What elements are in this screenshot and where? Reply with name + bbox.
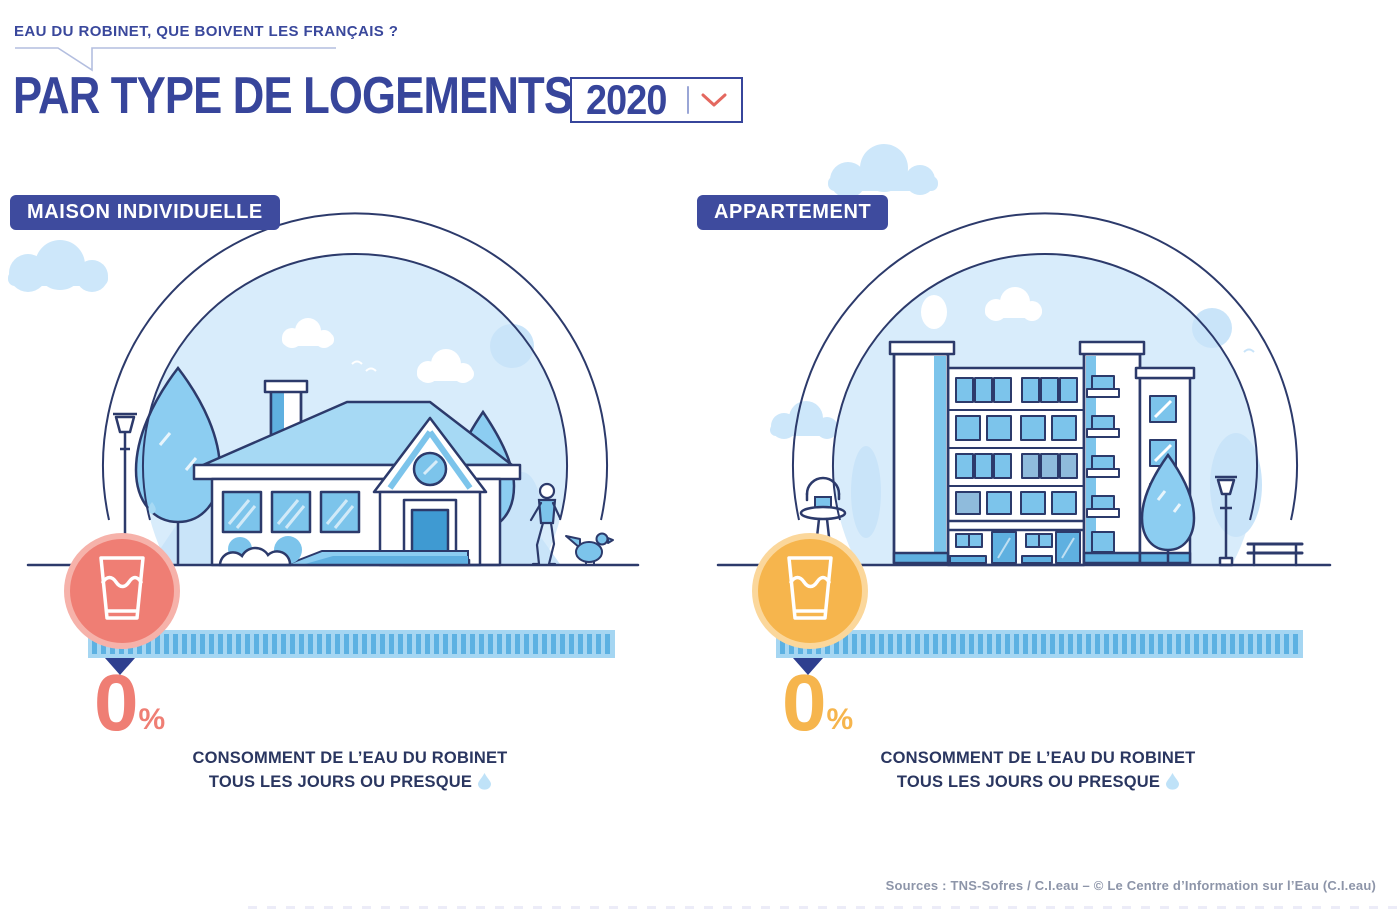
bench-icon <box>1248 544 1302 565</box>
window <box>321 492 359 532</box>
water-drop-icon <box>1166 773 1179 790</box>
percent-value-apartment: 0 % <box>782 670 853 736</box>
infographic-canvas: EAU DU ROBINET, QUE BOIVENT LES FRANÇAIS… <box>0 0 1400 915</box>
panel-label-badge-house: MAISON INDIVIDUELLE <box>10 195 280 230</box>
panel-label-badge-apartment: APPARTEMENT <box>697 195 888 230</box>
bar-pointer <box>105 658 135 675</box>
cloud <box>8 240 108 292</box>
caption-line: TOUS LES JOURS OU PRESQUE <box>209 773 472 791</box>
percent-number: 0 <box>94 670 137 736</box>
caption-house: CONSOMMENT DE L’EAU DU ROBINET TOUS LES … <box>75 747 625 795</box>
year-dropdown[interactable]: 2020 <box>570 77 743 123</box>
chicken <box>566 534 613 566</box>
bar-pointer <box>793 658 823 675</box>
bottom-dashed-divider <box>248 906 1400 909</box>
percent-number: 0 <box>782 670 825 736</box>
bar-stripes <box>780 634 1299 654</box>
percent-value-house: 0 % <box>94 670 165 736</box>
caption-line: TOUS LES JOURS OU PRESQUE <box>897 773 1160 791</box>
window <box>272 492 310 532</box>
percent-sign: % <box>139 705 166 735</box>
caption-apartment: CONSOMMENT DE L’EAU DU ROBINET TOUS LES … <box>763 747 1313 795</box>
year-dropdown-value: 2020 <box>586 79 666 121</box>
window <box>223 492 261 532</box>
water-glass-icon <box>752 533 868 649</box>
tagline: EAU DU ROBINET, QUE BOIVENT LES FRANÇAIS… <box>14 23 398 40</box>
percent-sign: % <box>827 705 854 735</box>
caption-line: CONSOMMENT DE L’EAU DU ROBINET <box>881 749 1196 767</box>
sources-credit: Sources : TNS-Sofres / C.I.eau – © Le Ce… <box>886 878 1376 893</box>
water-glass-icon <box>64 533 180 649</box>
water-drop-icon <box>478 773 491 790</box>
progress-bar-house <box>88 630 615 658</box>
progress-bar-apartment <box>776 630 1303 658</box>
bar-stripes <box>92 634 611 654</box>
divider <box>687 86 689 114</box>
caption-line: CONSOMMENT DE L’EAU DU ROBINET <box>193 749 508 767</box>
chevron-down-icon <box>701 92 727 108</box>
page-title: PAR TYPE DE LOGEMENTS <box>13 70 572 122</box>
